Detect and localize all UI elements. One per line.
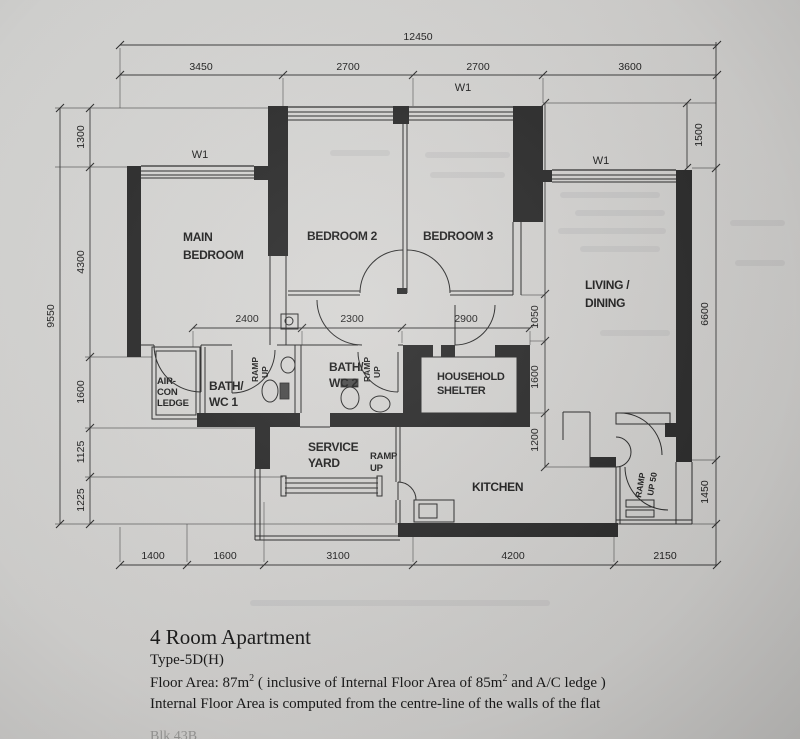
label-aircon-3: LEDGE [157,398,189,409]
label-shelter-1: HOUSEHOLD [437,371,505,383]
window-tag-right: W1 [593,155,610,167]
label-ramp-entrance-2: UP 50 [645,471,659,496]
label-bedroom2: BEDROOM 2 [307,229,378,243]
basin-bath2 [370,396,390,412]
toilet-bath1 [262,380,278,402]
dim-mid-3: 2900 [454,313,478,325]
dimensions-left: 9550 1300 4300 1600 1125 1225 [45,104,94,528]
label-ramp-yard-2: UP [370,463,384,474]
basin-bath1 [281,357,295,373]
cistern-bath1 [280,383,289,399]
dim-inner-3: 1600 [529,365,541,389]
plan-note: Internal Floor Area is computed from the… [150,694,606,715]
dim-left-4: 1125 [75,441,87,464]
dim-bottom-4: 4200 [501,550,525,562]
label-ramp-bath2-2: UP [372,366,382,378]
floor-area-mid: ( inclusive of Internal Floor Area of 85… [254,675,502,691]
dim-top-3: 2700 [466,61,490,73]
window-tag-left: W1 [192,149,209,161]
dim-left-1: 1300 [75,125,87,149]
dim-left-3: 1600 [75,380,87,404]
dim-inner-2: 1050 [529,305,541,329]
label-service-1: SERVICE [308,440,359,454]
label-living-2: DINING [585,296,625,310]
dim-right-1500: 1500 [693,123,705,147]
dimensions-bottom: 1400 1600 3100 4200 2150 [116,550,721,569]
label-bath1-1: BATH/ [209,379,244,393]
dim-mid-1: 2400 [235,313,259,325]
label-ramp-bath1-1: RAMP [250,357,260,382]
dim-top-4: 3600 [618,61,642,73]
dim-top-2: 2700 [336,61,360,73]
label-main-bedroom-2: BEDROOM [183,248,244,262]
label-bath2-2: WC 2 [329,376,358,390]
plan-floor-area: Floor Area: 87m2 ( inclusive of Internal… [150,672,606,694]
footer-partial-text: Blk 43B [150,729,197,739]
dimensions-top: 12450 3450 2700 2700 3600 [116,31,721,79]
dim-mid-2: 2300 [340,313,364,325]
label-service-2: YARD [308,456,340,470]
kitchen-sink [419,504,437,518]
dim-right-6600: 6600 [699,302,711,326]
plan-type: Type-5D(H) [150,650,606,671]
label-ramp-bath2-1: RAMP [362,357,372,382]
dim-bottom-5: 2150 [653,550,677,562]
window-tags: W1 W1 W1 [192,82,610,167]
kitchen-cabinet [414,500,454,522]
toilet-bath2 [341,387,359,409]
plan-title: 4 Room Apartment [150,624,606,650]
label-ramp-bath1-2: UP [260,366,270,378]
basin-counter [281,314,298,329]
dim-top-1: 3450 [189,61,213,73]
dim-top-total: 12450 [403,31,432,43]
dim-left-5: 1225 [75,488,87,512]
floor-plan-photo: 12450 3450 2700 2700 3600 9550 1300 4300… [0,0,800,739]
label-shelter-2: SHELTER [437,385,486,397]
label-ramp-yard-1: RAMP [370,451,398,462]
dim-inner-4: 1200 [529,428,541,452]
label-kitchen: KITCHEN [472,480,523,494]
floor-area-post: and A/C ledge ) [507,675,605,691]
dim-left-total: 9550 [45,304,57,328]
label-bath2-1: BATH/ [329,360,364,374]
title-block: 4 Room Apartment Type-5D(H) Floor Area: … [150,624,606,715]
label-living-1: LIVING / [585,278,630,292]
dim-bottom-1: 1400 [141,550,165,562]
label-aircon-1: AIR- [157,376,176,387]
dim-bottom-2: 1600 [213,550,237,562]
label-main-bedroom-1: MAIN [183,230,212,244]
dim-bottom-3: 3100 [326,550,350,562]
label-bath1-2: WC 1 [209,395,238,409]
label-bedroom3: BEDROOM 3 [423,229,494,243]
dim-left-2: 4300 [75,250,87,274]
label-aircon-2: CON [157,387,178,398]
window-tag-top: W1 [455,82,472,94]
floor-area-text: Floor Area: 87m [150,675,249,691]
laundry-rack [281,476,382,496]
dim-right-1450: 1450 [699,480,711,504]
dimensions-mid: 2400 2300 2900 [189,313,534,332]
